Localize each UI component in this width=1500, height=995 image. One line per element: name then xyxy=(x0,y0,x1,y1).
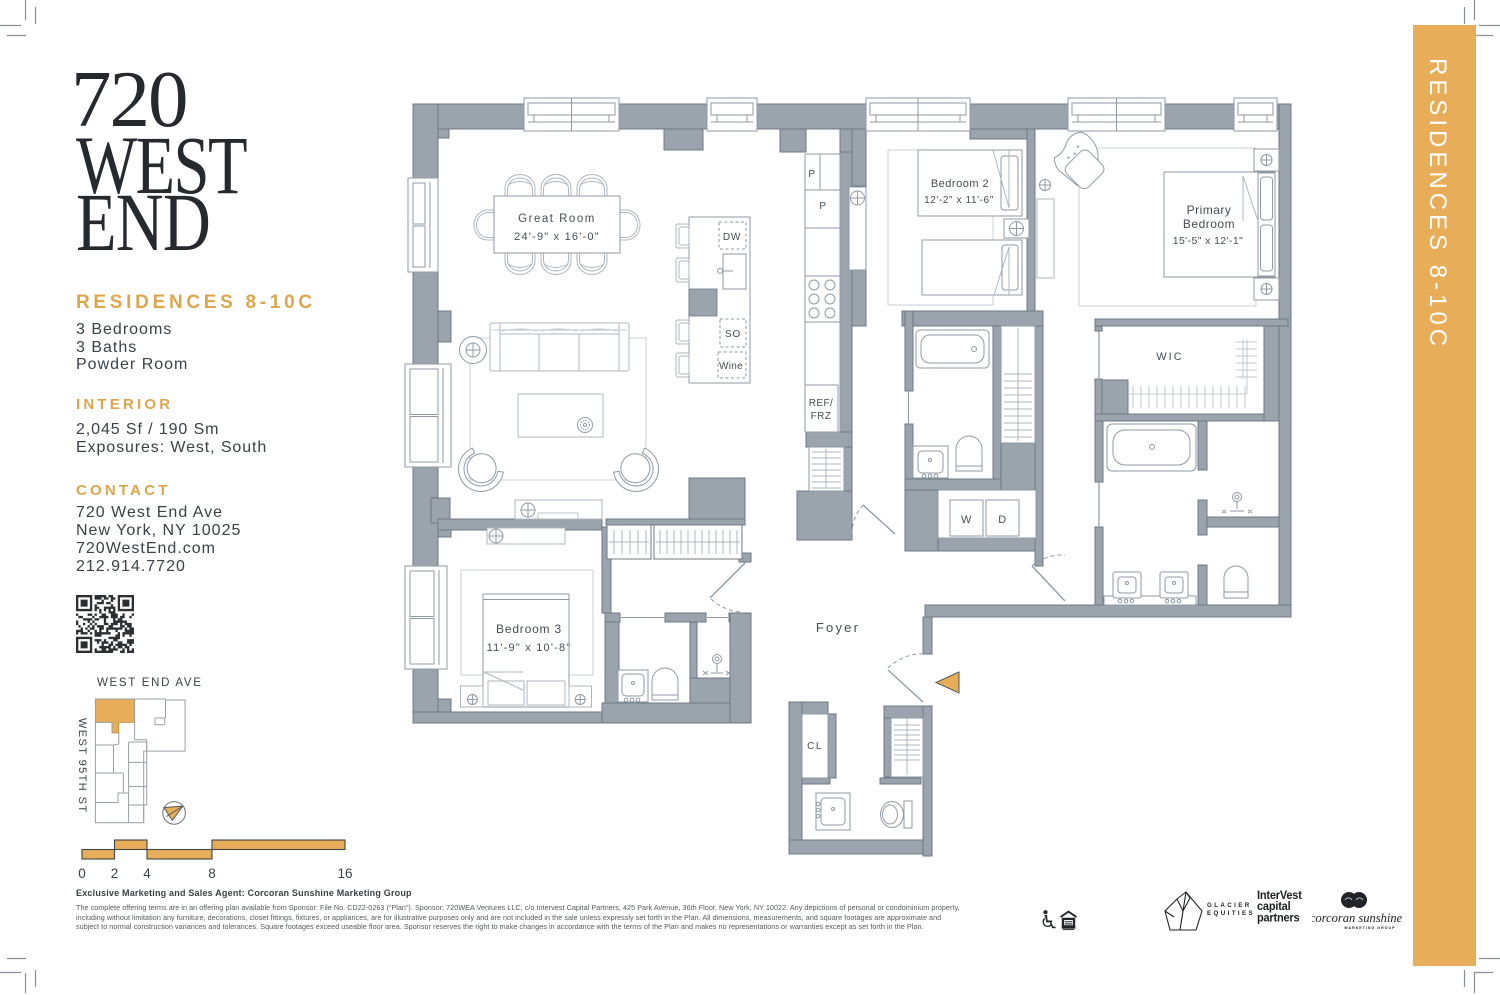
svg-text:WIC: WIC xyxy=(1156,351,1183,363)
svg-text:FRZ: FRZ xyxy=(811,411,832,422)
svg-text:Bedroom: Bedroom xyxy=(1183,217,1235,231)
svg-text:Foyer: Foyer xyxy=(816,620,860,635)
svg-text:P: P xyxy=(808,169,815,180)
svg-text:Great Room: Great Room xyxy=(518,213,596,225)
svg-text:Bedroom 2: Bedroom 2 xyxy=(931,178,989,190)
svg-text:24'-9" x 16'-0": 24'-9" x 16'-0" xyxy=(514,231,600,243)
svg-text:11'-9" x 10'-8": 11'-9" x 10'-8" xyxy=(487,642,572,654)
svg-text:Wine: Wine xyxy=(719,361,743,372)
svg-text:DW: DW xyxy=(723,232,741,243)
svg-text:Primary: Primary xyxy=(1187,203,1232,217)
svg-text:D: D xyxy=(998,514,1006,526)
svg-text:REF/: REF/ xyxy=(809,398,833,409)
svg-text:CL: CL xyxy=(807,741,823,752)
svg-text:12'-2" x 11'-6": 12'-2" x 11'-6" xyxy=(924,195,994,206)
svg-text:SO: SO xyxy=(725,329,741,340)
svg-text:Bedroom 3: Bedroom 3 xyxy=(496,622,562,636)
svg-text:P: P xyxy=(819,201,826,212)
svg-text:W: W xyxy=(961,514,972,526)
svg-text:15'-5" x 12'-1": 15'-5" x 12'-1" xyxy=(1173,235,1244,247)
